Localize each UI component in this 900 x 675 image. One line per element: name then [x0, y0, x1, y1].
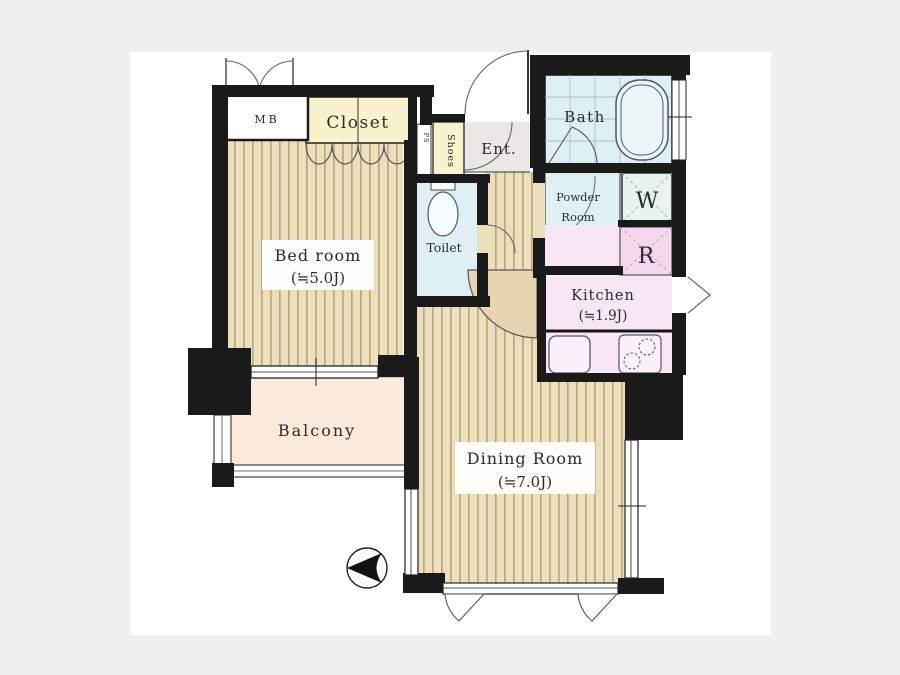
dining-bottom-window — [443, 583, 618, 594]
floor-plan-drawing: Balcony Closet MB PS Shoes — [0, 0, 900, 675]
bathtub-icon — [616, 80, 668, 160]
compass-icon — [347, 548, 387, 588]
floor-plan-page: Balcony Closet MB PS Shoes — [0, 0, 900, 675]
toilet-door-gap — [477, 225, 488, 253]
dining-label: Dining Room — [467, 449, 583, 468]
powder-door-gap — [533, 183, 545, 238]
bedroom-label: Bed room — [275, 246, 362, 265]
bath: Bath — [545, 75, 672, 165]
refrigerator-space: R — [620, 227, 672, 275]
pipe-space-label: PS — [422, 133, 430, 144]
powder-room-label-2: Room — [561, 210, 595, 224]
toilet-label: Toilet — [426, 240, 461, 255]
dining-left-window — [405, 489, 418, 575]
powder-room-label-1: Powder — [556, 190, 600, 204]
washer-space-label: W — [636, 189, 659, 214]
toilet-icon — [428, 180, 458, 236]
stove-icon — [619, 335, 661, 373]
refrigerator-space-label: R — [638, 244, 656, 269]
kitchen-sink-icon — [549, 336, 590, 373]
balcony-railing-left — [214, 415, 231, 465]
shoe-cabinet-label: Shoes — [445, 134, 456, 168]
balcony-label: Balcony — [278, 421, 356, 440]
bedroom-label-box: Bed room (≒5.0J) — [262, 240, 374, 290]
dining-label-box: Dining Room (≒7.0J) — [455, 442, 595, 494]
toilet-room: Toilet — [416, 180, 477, 296]
dining-right-window — [625, 440, 638, 578]
kitchen-label: Kitchen — [571, 288, 635, 304]
bath-label: Bath — [564, 108, 606, 126]
bedroom-size-label: (≒5.0J) — [291, 269, 345, 287]
entrance-label: Ent. — [481, 140, 516, 158]
kitchen-door-gap — [672, 277, 686, 313]
dining-size-label: (≒7.0J) — [498, 473, 552, 491]
kitchen-size-label: (≒1.9J) — [579, 308, 628, 324]
meter-box-label: MB — [254, 113, 279, 126]
closet-label: Closet — [326, 113, 389, 133]
washer-space: W — [622, 173, 672, 222]
